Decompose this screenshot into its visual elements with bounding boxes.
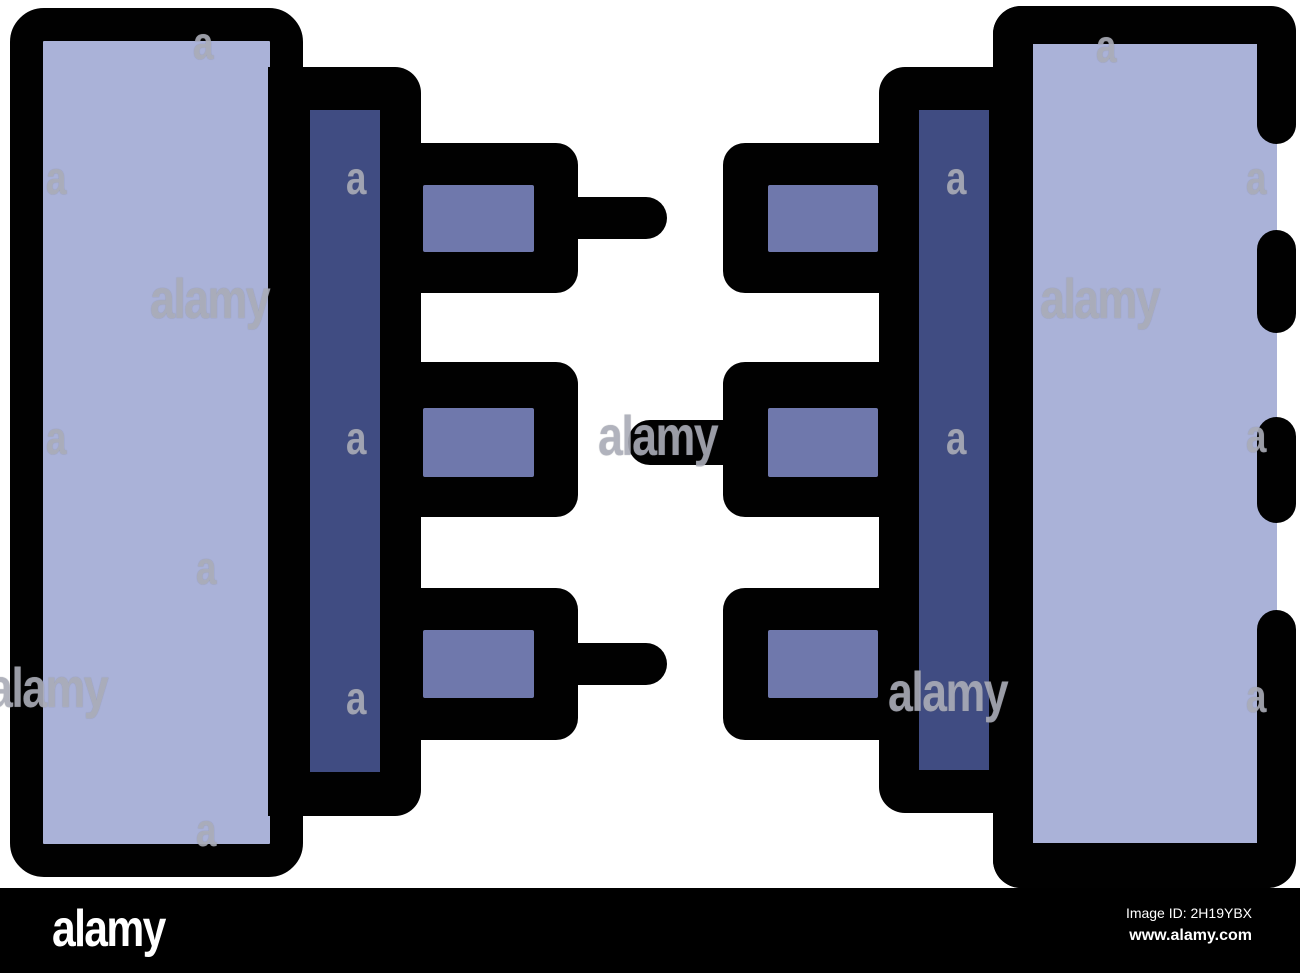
footer-bar: alamy Image ID: 2H19YBX www.alamy.com xyxy=(0,888,1300,973)
footer-meta: Image ID: 2H19YBX www.alamy.com xyxy=(1126,902,1252,947)
left-connector-bar xyxy=(310,110,380,772)
right-block-bottom-border xyxy=(993,843,1296,888)
left-connector-block xyxy=(10,8,303,877)
website-text: www.alamy.com xyxy=(1126,924,1252,947)
left-pin-top-fill xyxy=(423,185,534,252)
stock-image-preview: aaaaaaaaaaaaaaalamyalamyalamyalamyalamy … xyxy=(0,0,1300,973)
left-pin-middle-fill xyxy=(423,408,534,477)
right-connector-block xyxy=(1033,42,1277,845)
right-border-dash-1 xyxy=(1257,6,1296,144)
left-prong-bottom xyxy=(578,643,667,685)
right-border-dash-4 xyxy=(1257,610,1296,860)
right-border-dash-2 xyxy=(1257,230,1296,333)
right-prong-middle xyxy=(628,420,728,465)
right-pin-top-fill xyxy=(768,185,878,252)
left-pin-bottom-fill xyxy=(423,630,534,698)
image-id-text: Image ID: 2H19YBX xyxy=(1126,902,1252,924)
left-prong-top xyxy=(578,197,667,239)
right-pin-bottom-fill xyxy=(768,630,878,698)
right-block-top-border xyxy=(993,6,1296,44)
right-connector-bar xyxy=(919,110,989,770)
right-pin-middle-fill xyxy=(768,408,878,477)
alamy-logo: alamy xyxy=(52,888,165,971)
right-border-dash-3 xyxy=(1257,417,1296,523)
